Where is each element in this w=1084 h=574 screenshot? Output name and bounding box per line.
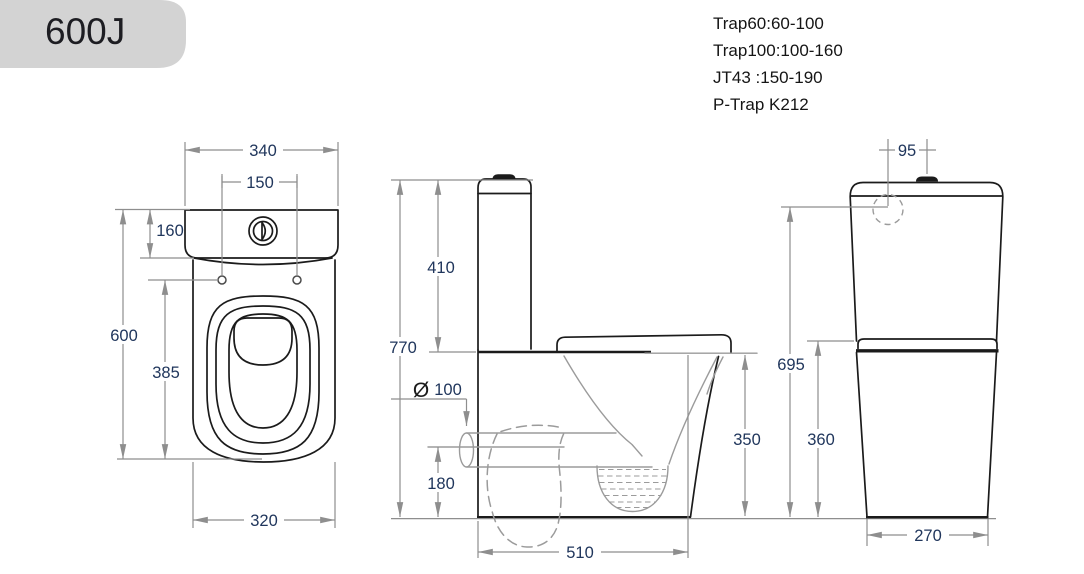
- dim-outlet-diameter-symbol: Ø: [413, 379, 429, 402]
- side-view: 770 410 Ø 100 180 510 350: [383, 174, 767, 562]
- dim-fixing-holes-spacing: 150: [246, 174, 274, 192]
- flush-button-icon: [249, 217, 277, 245]
- flush-rim-detail: [234, 318, 292, 365]
- dim-inlet-height: 695: [777, 356, 805, 374]
- spec-line: JT43 :150-190: [713, 68, 823, 87]
- toilet-dimension-diagram: 600J Trap60:60-100 Trap100:100-160 JT43 …: [0, 0, 1084, 574]
- pedestal-sides: [857, 353, 997, 518]
- spec-line: Trap60:60-100: [713, 14, 824, 33]
- bowl-opening: [229, 314, 297, 428]
- dim-rim-height: 350: [733, 431, 761, 449]
- dim-shelf-height: 360: [807, 431, 835, 449]
- fixing-hole-right: [293, 276, 301, 284]
- dim-cistern-width: 340: [249, 142, 277, 160]
- outlet-pipe-section: [460, 433, 474, 467]
- flush-button-rear-icon: [916, 177, 938, 182]
- rear-view: 95 695 360 270: [771, 139, 1003, 546]
- dim-outlet-centre-height: 180: [427, 475, 455, 493]
- spec-line: P-Trap K212: [713, 95, 809, 114]
- dim-cistern-depth: 160: [156, 222, 184, 240]
- seat-hinge-band: [858, 339, 997, 349]
- cistern-rear-outline: [850, 183, 1003, 342]
- page-title: 600J: [45, 11, 125, 52]
- top-view: 340 150 160 600 385 320: [104, 142, 338, 530]
- dim-base-width: 270: [914, 527, 942, 545]
- flush-button-side-icon: [493, 174, 516, 179]
- cistern-side-outline: [478, 179, 531, 350]
- rear-view-dimensions: 95 695 360 270: [771, 139, 988, 546]
- technical-drawing-page: 600J Trap60:60-100 Trap100:100-160 JT43 …: [0, 0, 1084, 574]
- top-view-dimensions: 340 150 160 600 385 320: [104, 142, 338, 530]
- trap-spec-list: Trap60:60-100 Trap100:100-160 JT43 :150-…: [713, 14, 843, 114]
- seat-inner-ring: [216, 306, 310, 443]
- dim-inlet-offset: 95: [898, 142, 916, 160]
- title-banner: 600J: [0, 0, 186, 68]
- dim-cistern-height: 410: [427, 259, 455, 277]
- seat-outer-ring: [207, 296, 319, 454]
- dim-outlet-diameter: 100: [434, 381, 462, 399]
- fixing-hole-left: [218, 276, 226, 284]
- hidden-trap-pipe: [487, 425, 566, 547]
- dim-overall-length: 600: [110, 327, 138, 345]
- dim-pan-width: 320: [250, 512, 278, 530]
- dim-footprint-depth: 510: [566, 544, 594, 562]
- seat-side-profile: [557, 335, 731, 353]
- cistern-front-curve: [194, 258, 332, 265]
- dim-overall-height: 770: [389, 339, 417, 357]
- spec-line: Trap100:100-160: [713, 41, 843, 60]
- dim-holes-to-front: 385: [152, 364, 180, 382]
